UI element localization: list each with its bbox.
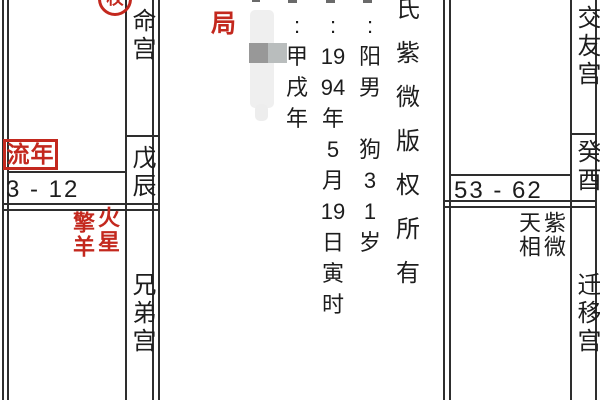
gender-age-char: 狗: [355, 134, 385, 165]
lunar-date-char: 年: [282, 103, 312, 134]
gender-age-char: 岁: [355, 227, 385, 258]
copyright-column: 氏紫微版权所有: [393, 0, 423, 296]
top-cutoff-sliver: [252, 0, 260, 2]
gender-age-char: 阳: [355, 41, 385, 72]
border-line-right-strip-sep: [570, 133, 597, 135]
transformation-marker-char: 权: [107, 0, 124, 8]
gender-age-column: :阳男狗31岁: [355, 10, 385, 258]
redacted-name-blur-tail: [255, 104, 268, 121]
border-line-left-strip: [125, 0, 127, 400]
gender-age-char: [355, 103, 385, 134]
border-line-left-right2: [158, 0, 160, 400]
friends-age-range: 53 - 62: [454, 177, 543, 205]
copyright-char: 所: [393, 208, 423, 252]
copyright-char: 紫: [393, 32, 423, 76]
solar-date-char: 5: [318, 134, 348, 165]
gender-age-char: 1: [355, 196, 385, 227]
gender-age-char: 3: [355, 165, 385, 196]
friends-branch-label: 癸酉: [574, 139, 598, 195]
lunar-date-column: :甲戌年: [282, 10, 312, 134]
lunar-date-char: 甲: [282, 41, 312, 72]
solar-date-char: 19: [318, 196, 348, 227]
migration-stars: 天相紫微: [517, 211, 564, 259]
solar-date-char: 94: [318, 72, 348, 103]
brothers-stars: 擎羊火星: [71, 206, 118, 259]
ming-age-range: 3 - 12: [6, 176, 79, 204]
star-label: 火星: [96, 206, 118, 259]
top-cutoff-sliver: [326, 0, 335, 3]
friends-palace-label: 交友宫: [574, 5, 598, 89]
solar-date-char: 月: [318, 165, 348, 196]
lunar-date-char: :: [282, 10, 312, 41]
gender-age-char: 男: [355, 72, 385, 103]
solar-date-char: 年: [318, 103, 348, 134]
copyright-char: 版: [393, 120, 423, 164]
ziwei-chart-screen: 权 命宫 戊辰 流年 3 - 12 擎羊火星 兄弟宫 交友宫 癸酉 53 - 6…: [0, 0, 600, 400]
solar-date-char: 日: [318, 227, 348, 258]
liunian-badge: 流年: [3, 139, 58, 170]
copyright-char: 权: [393, 164, 423, 208]
star-label: 天相: [517, 211, 539, 259]
solar-date-char: 时: [318, 289, 348, 320]
migration-palace-label: 迁移宫: [574, 272, 598, 356]
ming-palace-label: 命宫: [129, 8, 153, 64]
border-line-left-strip-sep: [125, 135, 160, 137]
brothers-palace-label: 兄弟宫: [129, 272, 153, 356]
copyright-char: 微: [393, 76, 423, 120]
border-line-left-agerow: [7, 171, 127, 173]
wuxing-ju-label: 局: [211, 4, 236, 40]
top-cutoff-sliver: [288, 0, 297, 3]
solar-date-column: :1994年5月19日寅时: [318, 10, 348, 320]
copyright-char: 氏: [393, 0, 423, 32]
border-line-left-outer: [2, 0, 4, 400]
solar-date-char: :: [318, 10, 348, 41]
copyright-char: 有: [393, 252, 423, 296]
solar-date-char: 寅: [318, 258, 348, 289]
ming-branch-label: 戊辰: [129, 145, 153, 201]
mosaic-cell-dark: [249, 43, 268, 63]
star-label: 擎羊: [71, 211, 93, 259]
solar-date-char: 19: [318, 41, 348, 72]
top-cutoff-sliver: [363, 0, 372, 3]
gender-age-char: :: [355, 10, 385, 41]
border-line-right-box2-top: [443, 206, 597, 208]
lunar-date-char: 戌: [282, 72, 312, 103]
star-label: 紫微: [542, 211, 564, 259]
border-line-right-agerow: [450, 174, 571, 176]
